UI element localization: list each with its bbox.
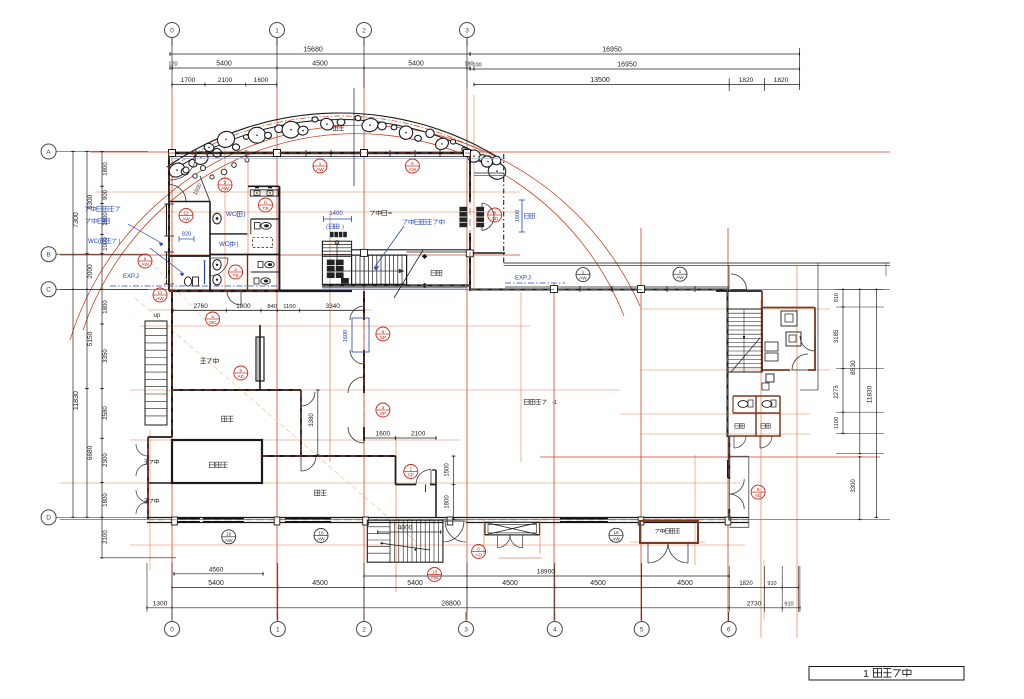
- svg-text:a: a: [144, 257, 147, 262]
- svg-text:2: 2: [362, 626, 366, 633]
- svg-text:16950: 16950: [617, 62, 637, 69]
- svg-text:3340: 3340: [325, 303, 340, 310]
- svg-text:7300: 7300: [73, 212, 80, 228]
- svg-text:910: 910: [834, 293, 840, 302]
- svg-text:4500: 4500: [502, 580, 518, 587]
- svg-text:1: 1: [275, 27, 279, 34]
- svg-text:0: 0: [170, 27, 174, 34]
- svg-text:A: A: [46, 149, 51, 156]
- svg-text:AD: AD: [755, 493, 762, 499]
- svg-text:AW: AW: [579, 276, 587, 282]
- svg-text:5150: 5150: [87, 331, 94, 346]
- svg-text:4500: 4500: [312, 61, 328, 68]
- svg-text:5: 5: [411, 161, 414, 167]
- svg-text:1800: 1800: [445, 495, 451, 509]
- svg-text:910: 910: [784, 601, 793, 607]
- svg-text:3: 3: [464, 626, 468, 633]
- svg-text:11830: 11830: [867, 385, 874, 403]
- svg-text:16: 16: [318, 530, 324, 536]
- svg-text:1600: 1600: [343, 330, 349, 342]
- svg-text:8530: 8530: [850, 360, 857, 375]
- svg-text:5400: 5400: [408, 61, 424, 68]
- svg-text:a: a: [493, 211, 496, 216]
- svg-text:4500: 4500: [677, 580, 693, 587]
- svg-text:B: B: [46, 252, 50, 259]
- svg-text:AW: AW: [676, 275, 684, 281]
- svg-text:2100: 2100: [411, 431, 426, 438]
- svg-text:4560: 4560: [209, 566, 224, 573]
- svg-text:AD: AD: [475, 553, 482, 559]
- svg-text:): ): [119, 239, 121, 245]
- svg-text:16: 16: [432, 569, 438, 575]
- svg-text:AD: AD: [491, 216, 498, 222]
- svg-text:4000: 4000: [398, 525, 413, 532]
- svg-text:100: 100: [472, 63, 481, 69]
- svg-text:1160: 1160: [283, 304, 295, 310]
- svg-text:SP: SP: [380, 411, 386, 417]
- svg-text:a: a: [234, 268, 237, 273]
- svg-text:WC(: WC(: [88, 239, 100, 245]
- svg-text:AD: AD: [237, 374, 244, 380]
- svg-text:2580: 2580: [103, 406, 109, 420]
- svg-text:6: 6: [477, 546, 480, 552]
- svg-text:TB: TB: [233, 273, 239, 279]
- svg-text:840: 840: [267, 304, 277, 310]
- svg-text:1: 1: [582, 269, 585, 275]
- svg-text:5400: 5400: [208, 580, 224, 587]
- svg-text:3380: 3380: [309, 413, 315, 427]
- svg-text:1800: 1800: [236, 303, 251, 310]
- svg-text:6: 6: [727, 626, 731, 633]
- svg-text:AW: AW: [156, 296, 164, 302]
- svg-text:5400: 5400: [216, 61, 232, 68]
- svg-text:16: 16: [226, 532, 232, 538]
- svg-text:6: 6: [757, 487, 760, 493]
- svg-text:11: 11: [158, 290, 163, 296]
- svg-text:2730: 2730: [747, 600, 762, 607]
- svg-text:6680: 6680: [87, 445, 94, 460]
- svg-text:1820: 1820: [739, 77, 754, 84]
- svg-text:900: 900: [103, 189, 109, 200]
- svg-text:4: 4: [553, 626, 557, 633]
- svg-text:1100: 1100: [834, 417, 840, 429]
- svg-text:-1: -1: [552, 400, 557, 406]
- svg-text:1300: 1300: [153, 600, 168, 607]
- svg-text:2: 2: [362, 27, 366, 34]
- svg-text:11830: 11830: [73, 391, 80, 410]
- svg-text:EXP.J: EXP.J: [123, 274, 139, 280]
- svg-text:1600: 1600: [376, 431, 391, 438]
- svg-text:16950: 16950: [602, 47, 622, 54]
- svg-text:2000: 2000: [87, 264, 94, 279]
- svg-text:1000: 1000: [103, 237, 109, 251]
- svg-text:SP: SP: [380, 335, 386, 341]
- svg-text:1600: 1600: [515, 210, 521, 222]
- svg-text:a: a: [211, 315, 214, 320]
- svg-text:3300: 3300: [851, 479, 857, 493]
- svg-text:1: 1: [319, 161, 322, 167]
- svg-text:1500: 1500: [445, 463, 451, 477]
- svg-text:28800: 28800: [441, 600, 461, 607]
- svg-text:a: a: [382, 330, 385, 335]
- svg-text:1: 1: [276, 626, 280, 633]
- svg-text:(: (: [326, 225, 328, 231]
- svg-text:AW: AW: [317, 537, 325, 543]
- svg-text:WD: WD: [209, 320, 218, 326]
- svg-text:TB: TB: [262, 206, 268, 212]
- svg-text:1: 1: [409, 466, 412, 472]
- svg-text:4500: 4500: [590, 580, 606, 587]
- svg-text:1400: 1400: [329, 211, 343, 217]
- svg-text:2300: 2300: [103, 453, 109, 467]
- svg-text:AW: AW: [141, 262, 149, 268]
- svg-text:1800: 1800: [103, 493, 109, 507]
- svg-text:AW: AW: [225, 538, 233, 544]
- svg-text:0: 0: [170, 626, 174, 633]
- svg-text:5: 5: [640, 626, 644, 633]
- svg-text:AW: AW: [182, 217, 190, 223]
- svg-text:EXP.J: EXP.J: [515, 276, 531, 282]
- svg-text:1: 1: [679, 269, 682, 275]
- svg-text:): ): [244, 211, 246, 218]
- svg-text:4500: 4500: [312, 580, 328, 587]
- svg-text:): ): [237, 241, 239, 248]
- svg-text:SP: SP: [408, 473, 414, 479]
- svg-text:910: 910: [767, 581, 776, 587]
- svg-text:3185: 3185: [834, 329, 840, 343]
- svg-text:820: 820: [182, 232, 191, 238]
- svg-text:AW: AW: [431, 576, 439, 582]
- svg-text:3: 3: [465, 27, 469, 34]
- svg-text:2100: 2100: [103, 530, 109, 544]
- svg-text:C: C: [46, 287, 51, 294]
- svg-text:D: D: [46, 515, 51, 522]
- svg-text:11: 11: [184, 210, 189, 216]
- svg-text:b: b: [264, 200, 267, 206]
- svg-text:2: 2: [224, 180, 227, 186]
- svg-text:1800: 1800: [103, 300, 109, 314]
- svg-text:1700: 1700: [181, 77, 196, 84]
- svg-text:120: 120: [168, 62, 177, 68]
- svg-text:AW: AW: [409, 167, 417, 173]
- svg-text:1820: 1820: [739, 581, 753, 587]
- svg-text:2760: 2760: [193, 303, 208, 310]
- svg-text:2275: 2275: [834, 385, 840, 399]
- svg-text:b: b: [239, 368, 242, 374]
- svg-text:18900: 18900: [537, 569, 555, 576]
- svg-text:AW: AW: [221, 186, 229, 192]
- svg-text:16: 16: [613, 530, 619, 536]
- svg-text:a: a: [382, 406, 385, 411]
- svg-text:13500: 13500: [590, 77, 610, 84]
- svg-text:1800: 1800: [103, 162, 109, 176]
- svg-text:5400: 5400: [407, 580, 423, 587]
- svg-text:1600: 1600: [254, 77, 269, 84]
- svg-text:1: 1: [863, 668, 869, 680]
- svg-text:2100: 2100: [218, 77, 233, 84]
- svg-text:15680: 15680: [303, 47, 323, 54]
- svg-text:up: up: [154, 313, 161, 319]
- svg-text:): ): [342, 225, 344, 231]
- svg-text:1820: 1820: [774, 77, 789, 84]
- svg-text:AW: AW: [612, 536, 620, 542]
- svg-text:AW: AW: [316, 167, 324, 173]
- svg-text:3350: 3350: [103, 349, 109, 363]
